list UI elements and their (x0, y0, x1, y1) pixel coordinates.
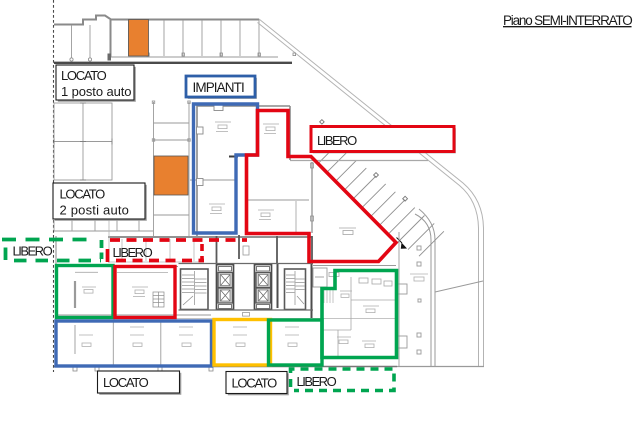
svg-text:1 posto auto: 1 posto auto (61, 84, 131, 99)
svg-text:LIBERO: LIBERO (297, 374, 337, 389)
svg-text:LIBERO: LIBERO (113, 245, 153, 260)
svg-text:LOCATO: LOCATO (60, 187, 106, 202)
svg-text:LIBERO: LIBERO (317, 133, 357, 148)
svg-text:LIBERO: LIBERO (13, 244, 53, 259)
svg-text:Piano SEMI-INTERRATO: Piano SEMI-INTERRATO (503, 13, 632, 28)
svg-text:IMPIANTI: IMPIANTI (193, 80, 244, 95)
svg-text:LOCATO: LOCATO (232, 376, 278, 391)
svg-text:2 posti auto: 2 posti auto (60, 203, 130, 218)
svg-text:LOCATO: LOCATO (103, 375, 149, 390)
svg-text:LOCATO: LOCATO (61, 68, 107, 83)
